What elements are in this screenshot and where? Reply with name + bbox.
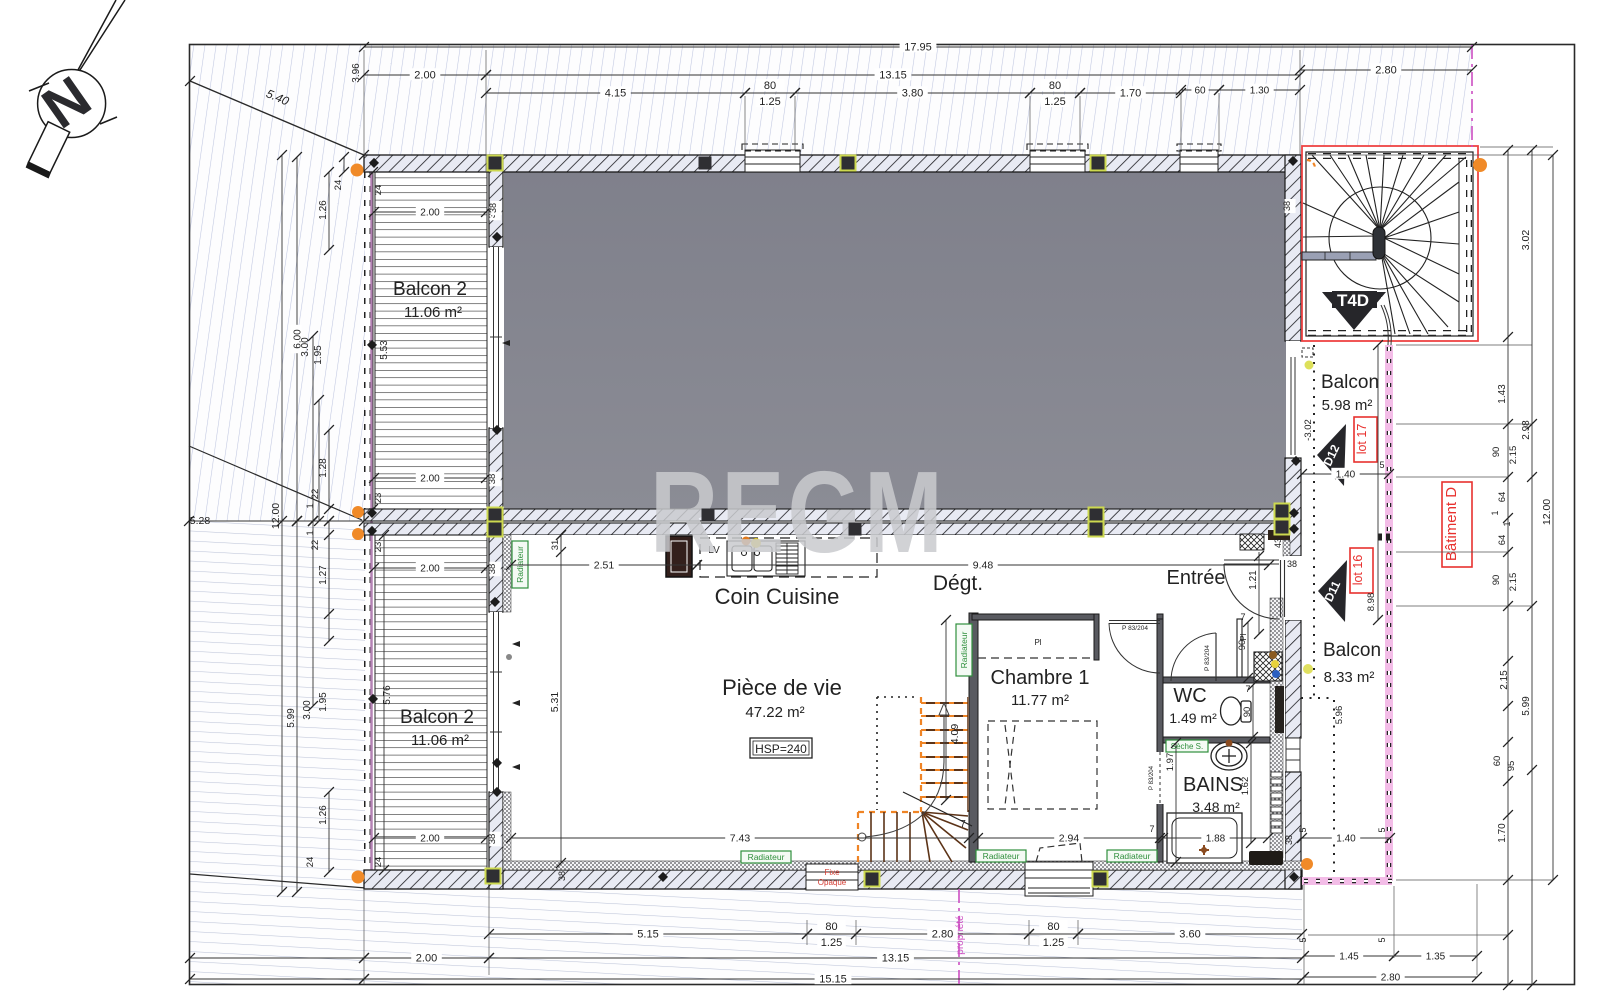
svg-text:7: 7 (960, 819, 966, 830)
svg-text:60: 60 (1194, 85, 1206, 96)
svg-text:12.00: 12.00 (270, 503, 282, 529)
svg-text:1: 1 (1490, 510, 1500, 515)
svg-text:1.62: 1.62 (1240, 777, 1251, 796)
svg-text:17.95: 17.95 (904, 42, 932, 54)
svg-text:2.98: 2.98 (1521, 420, 1532, 440)
svg-text:1.25: 1.25 (759, 96, 780, 108)
svg-text:64: 64 (1497, 492, 1508, 503)
svg-text:Fixe: Fixe (824, 868, 840, 877)
svg-text:Radiateur: Radiateur (515, 546, 525, 583)
svg-text:1.45: 1.45 (1339, 951, 1359, 962)
svg-text:5.53: 5.53 (379, 340, 390, 360)
svg-text:1.43: 1.43 (1497, 384, 1508, 404)
svg-text:5: 5 (1377, 827, 1387, 832)
svg-text:13.15: 13.15 (879, 70, 907, 82)
svg-text:P 83/204: P 83/204 (1122, 625, 1148, 632)
svg-text:38: 38 (487, 564, 498, 575)
svg-text:REGM: REGM (650, 447, 946, 577)
svg-text:1.26: 1.26 (318, 200, 329, 220)
svg-text:2.00: 2.00 (420, 207, 440, 218)
svg-text:1.95: 1.95 (313, 345, 324, 365)
svg-text:64: 64 (1497, 535, 1508, 546)
svg-text:1.49 m²: 1.49 m² (1169, 710, 1217, 726)
svg-text:1: 1 (305, 530, 316, 535)
svg-text:WC: WC (1173, 685, 1206, 707)
svg-text:1.21: 1.21 (1248, 570, 1259, 590)
svg-text:90: 90 (1237, 640, 1248, 651)
svg-text:1.97: 1.97 (1165, 753, 1176, 772)
svg-text:22: 22 (310, 540, 321, 551)
svg-text:1.25: 1.25 (821, 937, 842, 949)
svg-text:80: 80 (1047, 921, 1059, 933)
svg-text:2.80: 2.80 (1375, 65, 1396, 77)
svg-text:Bâtiment D: Bâtiment D (1443, 487, 1460, 561)
svg-text:38: 38 (487, 834, 498, 845)
svg-text:5.96: 5.96 (1334, 706, 1345, 725)
svg-text:38: 38 (488, 203, 498, 213)
svg-text:80: 80 (825, 921, 837, 933)
svg-text:Opaque: Opaque (818, 878, 847, 887)
svg-text:Entrée: Entrée (1167, 567, 1226, 589)
svg-text:12.00: 12.00 (1541, 499, 1553, 525)
svg-text:5.15: 5.15 (637, 929, 658, 941)
svg-text:3.00: 3.00 (300, 337, 311, 357)
svg-text:95: 95 (1506, 761, 1517, 772)
svg-text:7: 7 (1240, 612, 1245, 622)
svg-text:11.77 m²: 11.77 m² (1011, 692, 1069, 709)
svg-text:24: 24 (333, 180, 344, 191)
svg-text:2.94: 2.94 (1059, 833, 1080, 845)
svg-text:11.06 m²: 11.06 m² (411, 732, 469, 749)
svg-text:3.02: 3.02 (1520, 230, 1532, 251)
svg-text:5: 5 (1298, 827, 1308, 832)
svg-text:2.80: 2.80 (932, 929, 953, 941)
svg-text:Balcon 2: Balcon 2 (393, 279, 467, 300)
svg-text:3.96: 3.96 (351, 63, 362, 83)
svg-text:38: 38 (1282, 201, 1292, 211)
svg-text:1.25: 1.25 (1043, 937, 1064, 949)
svg-text:5.99: 5.99 (286, 708, 297, 728)
svg-text:2.00: 2.00 (420, 833, 440, 844)
svg-text:38: 38 (557, 871, 567, 881)
svg-text:1.35: 1.35 (1426, 951, 1446, 962)
svg-text:8.98: 8.98 (1366, 593, 1377, 612)
svg-text:1.70: 1.70 (1497, 823, 1508, 843)
svg-text:23: 23 (373, 542, 384, 553)
svg-text:1.40: 1.40 (1336, 833, 1356, 844)
svg-text:lot 17: lot 17 (1355, 424, 1369, 455)
svg-text:Radiateur: Radiateur (959, 631, 969, 668)
svg-text:24: 24 (373, 857, 384, 868)
svg-text:38: 38 (487, 474, 498, 485)
svg-text:P 83/204: P 83/204 (1204, 645, 1211, 671)
svg-text:13.15: 13.15 (882, 953, 910, 965)
svg-text:1.26: 1.26 (318, 805, 329, 825)
svg-text:24: 24 (373, 185, 384, 196)
svg-text:38: 38 (1287, 559, 1297, 569)
svg-text:2.15: 2.15 (1499, 670, 1510, 690)
svg-text:38: 38 (1284, 835, 1294, 845)
svg-text:4.15: 4.15 (605, 88, 626, 100)
svg-text:31: 31 (550, 540, 561, 551)
svg-text:Pl: Pl (1034, 638, 1041, 647)
svg-text:1.30: 1.30 (1250, 85, 1270, 96)
svg-text:Radiateur: Radiateur (1114, 851, 1151, 861)
svg-text:43: 43 (1273, 538, 1283, 548)
svg-text:1.95: 1.95 (318, 692, 329, 712)
svg-text:Pl: Pl (1239, 633, 1248, 640)
svg-text:4.09: 4.09 (949, 724, 961, 745)
svg-text:Balcon 2: Balcon 2 (400, 707, 474, 728)
svg-text:2.00: 2.00 (420, 473, 440, 484)
svg-text:80: 80 (764, 80, 776, 92)
svg-text:23: 23 (373, 493, 384, 504)
svg-text:1: 1 (305, 503, 316, 508)
svg-text:2.51: 2.51 (594, 560, 615, 572)
svg-text:5.76: 5.76 (382, 685, 393, 705)
svg-text:5.98 m²: 5.98 m² (1322, 397, 1373, 414)
svg-text:Radiateur: Radiateur (748, 852, 785, 862)
svg-text:24: 24 (305, 857, 316, 868)
svg-text:9.48: 9.48 (973, 560, 994, 572)
svg-text:22: 22 (310, 489, 321, 500)
svg-text:47.22 m²: 47.22 m² (745, 704, 804, 721)
svg-text:5.31: 5.31 (549, 692, 561, 713)
svg-text:Chambre 1: Chambre 1 (991, 667, 1090, 689)
svg-text:8.33 m²: 8.33 m² (1324, 669, 1375, 686)
svg-text:5.99: 5.99 (1521, 696, 1532, 716)
svg-text:1.40: 1.40 (1336, 469, 1356, 480)
svg-text:T4D: T4D (1337, 291, 1369, 310)
svg-text:Balcon: Balcon (1321, 372, 1379, 393)
svg-text:7: 7 (1149, 824, 1154, 834)
svg-text:1.88: 1.88 (1206, 833, 1226, 844)
svg-text:-3.02: -3.02 (1303, 419, 1314, 441)
svg-text:2.15: 2.15 (1508, 573, 1519, 592)
svg-text:P 83/204: P 83/204 (1149, 765, 1155, 790)
svg-text:2.80: 2.80 (1381, 972, 1401, 983)
svg-text:5: 5 (1298, 937, 1308, 942)
svg-text:1.28: 1.28 (318, 458, 329, 478)
svg-text:5: 5 (1379, 460, 1384, 470)
svg-text:1.70: 1.70 (1120, 88, 1141, 100)
svg-text:15.15: 15.15 (819, 974, 847, 986)
svg-text:1: 1 (1502, 521, 1512, 526)
svg-text:HSP=240: HSP=240 (755, 742, 807, 756)
svg-text:90: 90 (1491, 447, 1502, 458)
svg-text:Radiateur: Radiateur (983, 851, 1020, 861)
svg-text:2.00: 2.00 (420, 563, 440, 574)
svg-text:5: 5 (1377, 937, 1387, 942)
svg-text:2.00: 2.00 (416, 953, 437, 965)
svg-text:90: 90 (1491, 575, 1502, 586)
svg-text:1.27: 1.27 (318, 565, 329, 585)
svg-text:7.43: 7.43 (730, 833, 751, 845)
svg-text:90: 90 (1242, 707, 1253, 718)
svg-text:Coin Cuisine: Coin Cuisine (715, 584, 840, 609)
svg-text:80: 80 (1049, 80, 1061, 92)
svg-text:60: 60 (1492, 756, 1503, 767)
svg-text:11.06 m²: 11.06 m² (404, 304, 462, 321)
svg-text:1.25: 1.25 (1044, 96, 1065, 108)
svg-text:2.15: 2.15 (1508, 446, 1519, 465)
svg-text:BAINS: BAINS (1183, 774, 1243, 796)
svg-text:7: 7 (1245, 684, 1250, 694)
svg-text:Pièce de vie: Pièce de vie (722, 675, 842, 700)
svg-text:3.00: 3.00 (302, 700, 313, 720)
svg-text:2.00: 2.00 (414, 70, 435, 82)
svg-text:lot 16: lot 16 (1351, 555, 1365, 586)
svg-text:3.60: 3.60 (1179, 929, 1200, 941)
svg-text:3.80: 3.80 (902, 88, 923, 100)
svg-text:Balcon: Balcon (1323, 640, 1381, 661)
svg-text:3.48 m²: 3.48 m² (1192, 799, 1240, 815)
